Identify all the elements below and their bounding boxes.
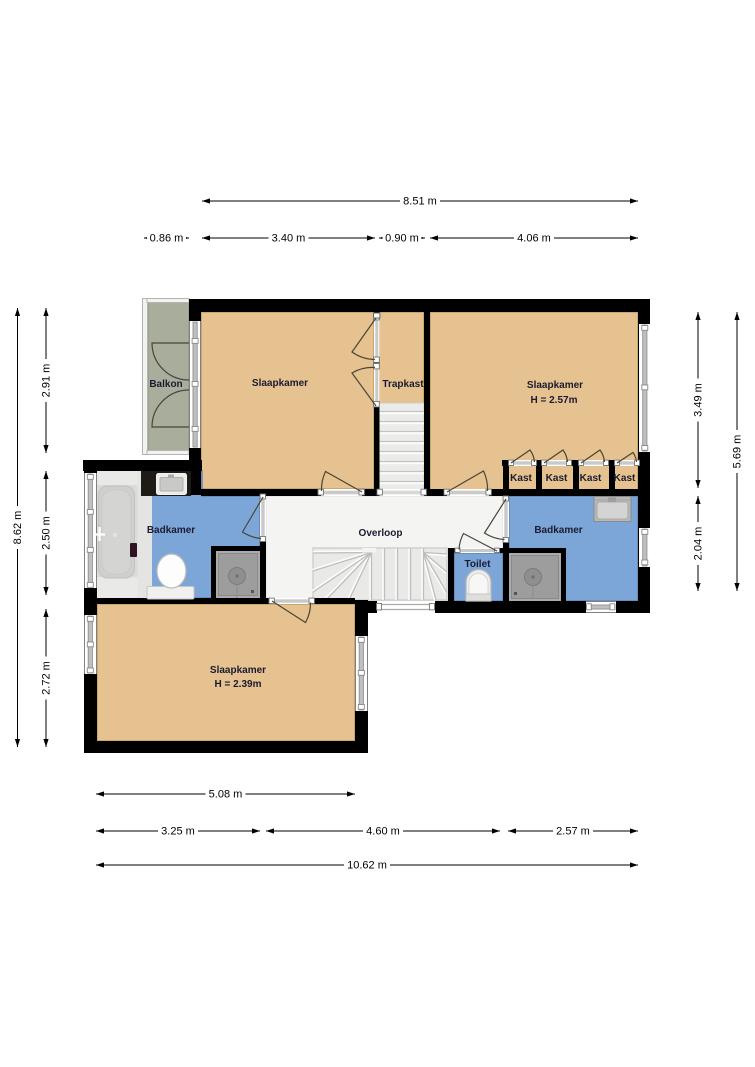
svg-text:2.50 m: 2.50 m — [41, 516, 53, 550]
svg-text:Badkamer: Badkamer — [534, 525, 582, 536]
svg-text:2.91 m: 2.91 m — [41, 364, 53, 398]
svg-text:3.49 m: 3.49 m — [693, 383, 705, 417]
svg-text:Slaapkamer: Slaapkamer — [252, 378, 308, 389]
svg-text:H = 2.39m: H = 2.39m — [215, 679, 262, 690]
svg-text:Kast: Kast — [614, 473, 636, 484]
svg-text:2.04 m: 2.04 m — [693, 527, 705, 561]
svg-text:Kast: Kast — [546, 473, 568, 484]
svg-text:Slaapkamer: Slaapkamer — [210, 665, 266, 676]
svg-text:Badkamer: Badkamer — [147, 525, 195, 536]
svg-text:Slaapkamer: Slaapkamer — [527, 380, 583, 391]
svg-text:8.62 m: 8.62 m — [12, 511, 24, 545]
svg-text:4.60 m: 4.60 m — [366, 826, 400, 838]
svg-text:Overloop: Overloop — [359, 528, 403, 539]
svg-text:Toilet: Toilet — [465, 559, 492, 570]
svg-text:2.57 m: 2.57 m — [556, 826, 590, 838]
svg-text:Trapkast: Trapkast — [382, 379, 424, 390]
svg-text:4.06 m: 4.06 m — [517, 233, 551, 245]
svg-text:Kast: Kast — [580, 473, 602, 484]
svg-text:8.51 m: 8.51 m — [403, 196, 437, 208]
svg-text:3.25 m: 3.25 m — [161, 826, 195, 838]
svg-text:5.69 m: 5.69 m — [732, 435, 744, 469]
svg-text:Balkon: Balkon — [149, 379, 182, 390]
svg-text:5.08 m: 5.08 m — [209, 789, 243, 801]
svg-text:0.90 m: 0.90 m — [385, 233, 419, 245]
svg-text:Kast: Kast — [510, 473, 532, 484]
svg-text:0.86 m: 0.86 m — [150, 233, 184, 245]
svg-text:2.72 m: 2.72 m — [41, 661, 53, 695]
svg-text:10.62 m: 10.62 m — [347, 860, 387, 872]
svg-text:H = 2.57m: H = 2.57m — [531, 395, 578, 406]
svg-text:3.40 m: 3.40 m — [272, 233, 306, 245]
